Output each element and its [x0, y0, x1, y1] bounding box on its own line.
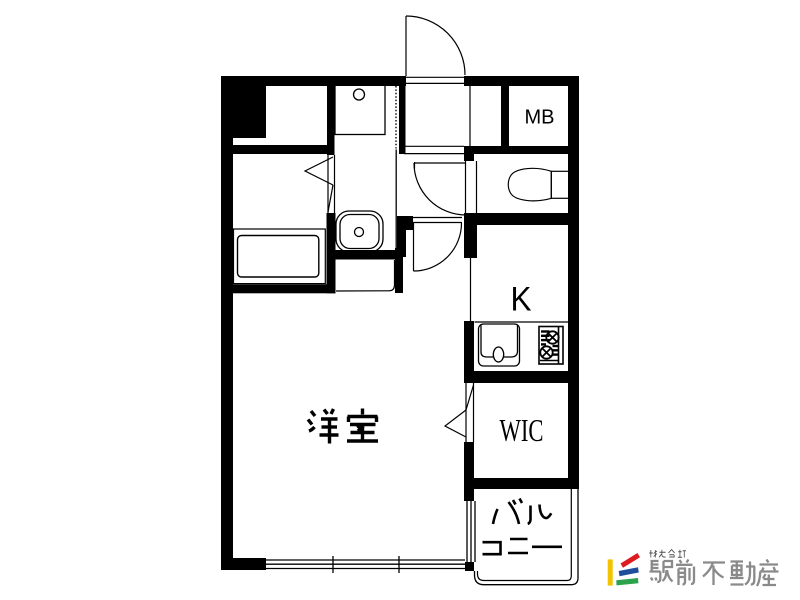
- svg-text:MB: MB: [525, 107, 555, 129]
- svg-text:K: K: [511, 281, 532, 319]
- svg-text:WIC: WIC: [500, 413, 544, 448]
